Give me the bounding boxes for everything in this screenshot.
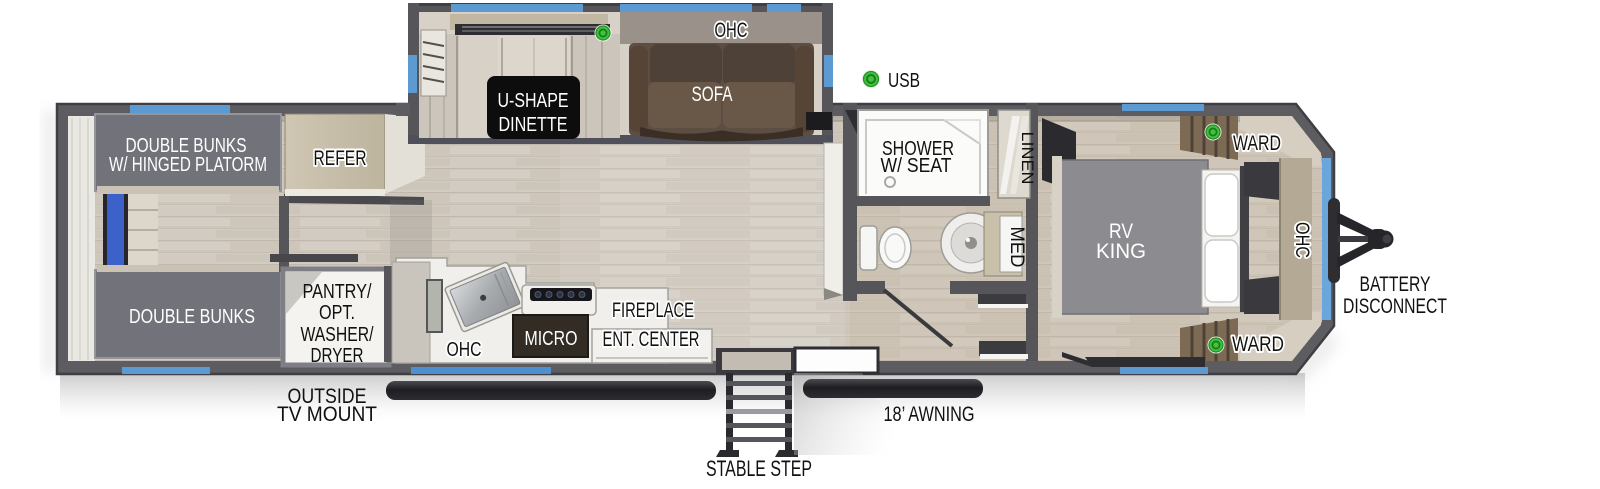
svg-text:OHC: OHC [715,19,748,42]
svg-text:DISCONNECT: DISCONNECT [1343,295,1447,318]
svg-text:DINETTE: DINETTE [499,114,568,136]
svg-text:SOFA: SOFA [692,83,733,106]
svg-text:BATTERY: BATTERY [1360,273,1431,296]
svg-text:MED: MED [1006,227,1027,268]
svg-text:OHC: OHC [1291,222,1312,258]
svg-text:U-SHAPE: U-SHAPE [498,90,569,112]
svg-text:WARD: WARD [1232,333,1284,356]
svg-text:WARD: WARD [1233,132,1281,155]
svg-text:DRYER: DRYER [311,345,364,367]
svg-text:OHC: OHC [447,339,482,361]
svg-text:DOUBLE BUNKS: DOUBLE BUNKS [129,306,255,328]
svg-text:ENT. CENTER: ENT. CENTER [603,328,700,351]
svg-text:FIREPLACE: FIREPLACE [612,298,694,322]
svg-text:WASHER/: WASHER/ [301,324,374,346]
svg-text:PANTRY/: PANTRY/ [303,281,372,303]
svg-text:STABLE STEP: STABLE STEP [706,456,812,481]
svg-text:OPT.: OPT. [319,302,355,324]
svg-text:W/ SEAT: W/ SEAT [881,155,952,177]
svg-text:KING: KING [1096,240,1146,263]
svg-text:USB: USB [888,70,920,92]
svg-text:TV MOUNT: TV MOUNT [277,403,377,426]
svg-text:LINEN: LINEN [1018,132,1037,185]
svg-text:REFER: REFER [314,147,367,170]
svg-text:18’ AWNING: 18’ AWNING [884,403,975,426]
svg-text:W/ HINGED PLATORM: W/ HINGED PLATORM [109,154,267,176]
svg-text:MICRO: MICRO [525,328,578,350]
